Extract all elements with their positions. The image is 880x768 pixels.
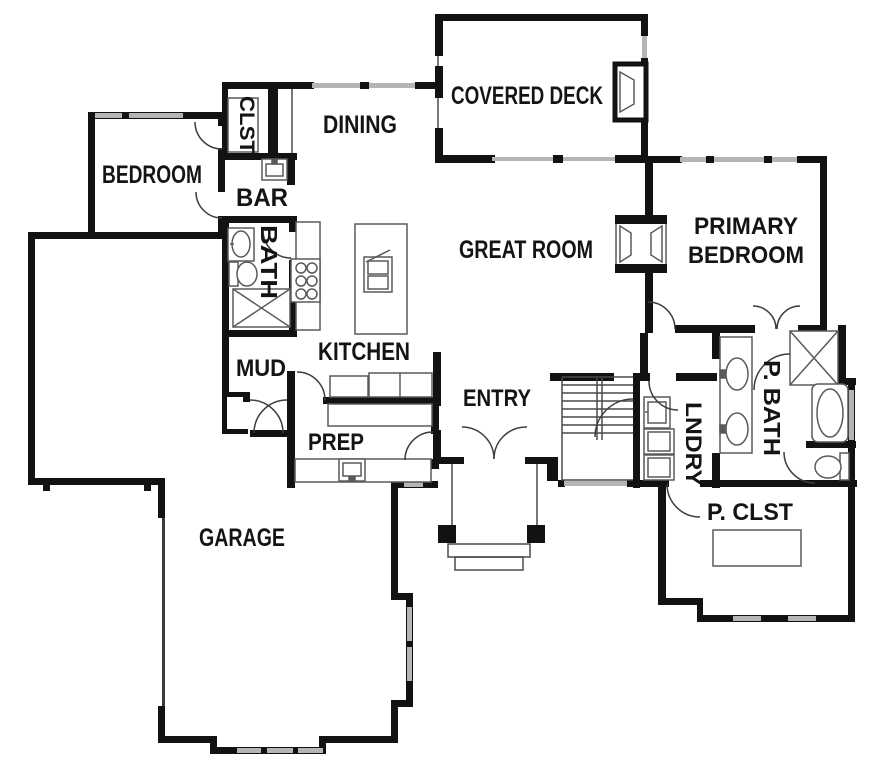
room-label-bedroom: BEDROOM bbox=[102, 161, 202, 189]
window bbox=[298, 748, 323, 753]
bar-sink-icon bbox=[262, 159, 287, 180]
double-door-leaf bbox=[777, 306, 800, 329]
window bbox=[407, 607, 412, 641]
door-arc bbox=[784, 452, 815, 483]
window bbox=[642, 36, 647, 58]
island-sink-icon bbox=[364, 250, 392, 292]
room-label-prep: PREP bbox=[308, 429, 364, 456]
sliding-door bbox=[563, 157, 615, 161]
window bbox=[564, 481, 627, 486]
room-label-bath: BATH bbox=[256, 225, 282, 299]
door-arc bbox=[195, 122, 222, 149]
porch-column bbox=[438, 525, 456, 543]
double-door-leaf bbox=[753, 306, 776, 329]
room-label-lndry: LNDRY bbox=[681, 402, 706, 486]
bathtub-icon bbox=[812, 384, 848, 442]
room-label-p-clst: P. CLST bbox=[707, 499, 793, 526]
entry-porch bbox=[448, 464, 537, 570]
room-label-bar: BAR bbox=[236, 184, 288, 212]
entry-door-leaf bbox=[494, 427, 527, 459]
window bbox=[237, 748, 261, 753]
room-label-garage: GARAGE bbox=[199, 524, 285, 552]
room-label-kitchen: KITCHEN bbox=[318, 338, 410, 366]
window bbox=[733, 616, 761, 621]
sliding-door bbox=[492, 157, 553, 161]
porch-column bbox=[527, 525, 545, 543]
window bbox=[369, 83, 415, 88]
prep-counter bbox=[328, 404, 432, 426]
room-label-covered-deck: COVERED DECK bbox=[451, 82, 603, 110]
floor-plan: BEDROOM DINING COVERED DECK CLST BAR BAT… bbox=[0, 0, 880, 768]
double-vanity-icon bbox=[720, 337, 752, 453]
door-arc bbox=[667, 484, 700, 517]
fixture-layer bbox=[228, 64, 849, 566]
room-label-clst: CLST bbox=[235, 96, 258, 154]
closet-island bbox=[713, 530, 801, 566]
window bbox=[680, 157, 706, 162]
door-arc bbox=[405, 432, 433, 460]
window bbox=[772, 157, 797, 162]
door-arc bbox=[595, 399, 633, 437]
window bbox=[788, 616, 816, 621]
window bbox=[407, 647, 412, 681]
room-label-p-bath: P. BATH bbox=[759, 360, 785, 456]
walk-in-shower-icon bbox=[790, 331, 838, 385]
toilet-icon bbox=[229, 262, 257, 286]
door-arc bbox=[196, 192, 222, 218]
bath-sink-icon bbox=[228, 228, 254, 261]
label-layer: BEDROOM DINING COVERED DECK CLST BAR BAT… bbox=[102, 82, 804, 552]
base-cabinet bbox=[330, 376, 368, 397]
garage-door-opening bbox=[162, 518, 165, 706]
room-label-mud: MUD bbox=[236, 355, 286, 382]
window bbox=[95, 113, 122, 118]
room-label-great-room: GREAT ROOM bbox=[459, 236, 593, 264]
deck-fireplace-icon bbox=[615, 64, 646, 120]
room-label-primary-line2: BEDROOM bbox=[688, 242, 804, 269]
door-arc bbox=[297, 372, 325, 400]
prep-sink-icon bbox=[339, 459, 365, 481]
window bbox=[849, 390, 854, 440]
washer-drum bbox=[648, 432, 670, 451]
room-label-entry: ENTRY bbox=[463, 385, 531, 412]
floor-plan-drawing: BEDROOM DINING COVERED DECK CLST BAR BAT… bbox=[0, 0, 880, 768]
entry-door-leaf bbox=[462, 427, 494, 459]
window bbox=[267, 748, 293, 753]
primary-toilet-icon bbox=[815, 453, 849, 480]
window bbox=[312, 83, 360, 88]
range-icon bbox=[291, 259, 320, 302]
room-label-primary-line1: PRIMARY bbox=[694, 213, 798, 240]
dryer-drum bbox=[648, 458, 670, 477]
porch-step bbox=[448, 544, 530, 557]
double-fireplace-icon bbox=[615, 215, 667, 273]
window bbox=[129, 113, 183, 118]
room-label-dining: DINING bbox=[323, 111, 397, 139]
porch-step bbox=[455, 557, 523, 570]
stairs bbox=[562, 377, 633, 480]
window bbox=[714, 157, 764, 162]
